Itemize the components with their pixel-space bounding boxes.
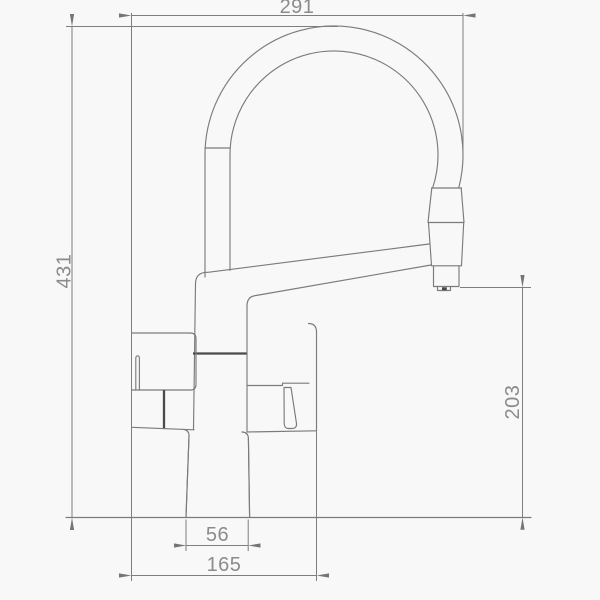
base-right-edge <box>248 438 249 517</box>
spout-arch <box>205 26 463 188</box>
spray-head <box>428 188 464 291</box>
left-handle-knob <box>132 333 197 390</box>
dimension-overall-height: 431 <box>54 27 339 518</box>
dimension-outlet-height: 203 <box>460 288 531 518</box>
right-handle <box>242 324 317 518</box>
right-handle-bottom-edge <box>247 431 317 432</box>
dimension-body-span: 165 <box>132 431 317 581</box>
spray-body-right <box>462 223 464 266</box>
arm-bottom-edge <box>247 265 431 307</box>
faucet-body <box>193 283 309 432</box>
right-handle-lever-edge <box>309 324 317 432</box>
left-handle <box>132 333 197 517</box>
arch-outer-arc <box>205 26 463 188</box>
hinge-step-line <box>247 383 309 385</box>
spray-collar-right <box>461 188 464 223</box>
dimension-label-56: 56 <box>206 524 229 546</box>
nozzle-block <box>434 266 460 287</box>
dimension-base-width: 56 <box>186 520 248 552</box>
spray-collar-left <box>428 188 432 223</box>
aerator-tip-dot <box>442 287 447 290</box>
dimension-label-431: 431 <box>54 254 76 289</box>
right-handle-blade <box>284 388 297 429</box>
body-left-edge <box>194 283 196 430</box>
technical-drawing-canvas: 291 431 203 56 165 <box>0 0 600 600</box>
dimension-label-165: 165 <box>207 554 242 576</box>
base-left-edge <box>186 436 189 517</box>
left-handle-slot <box>136 356 140 390</box>
dimension-label-203: 203 <box>502 385 524 420</box>
left-riser-pipe <box>205 148 230 277</box>
base-column <box>66 436 531 518</box>
spout-arm <box>196 244 432 307</box>
dimension-label-291: 291 <box>280 0 315 18</box>
arch-inner-arc <box>230 51 438 188</box>
